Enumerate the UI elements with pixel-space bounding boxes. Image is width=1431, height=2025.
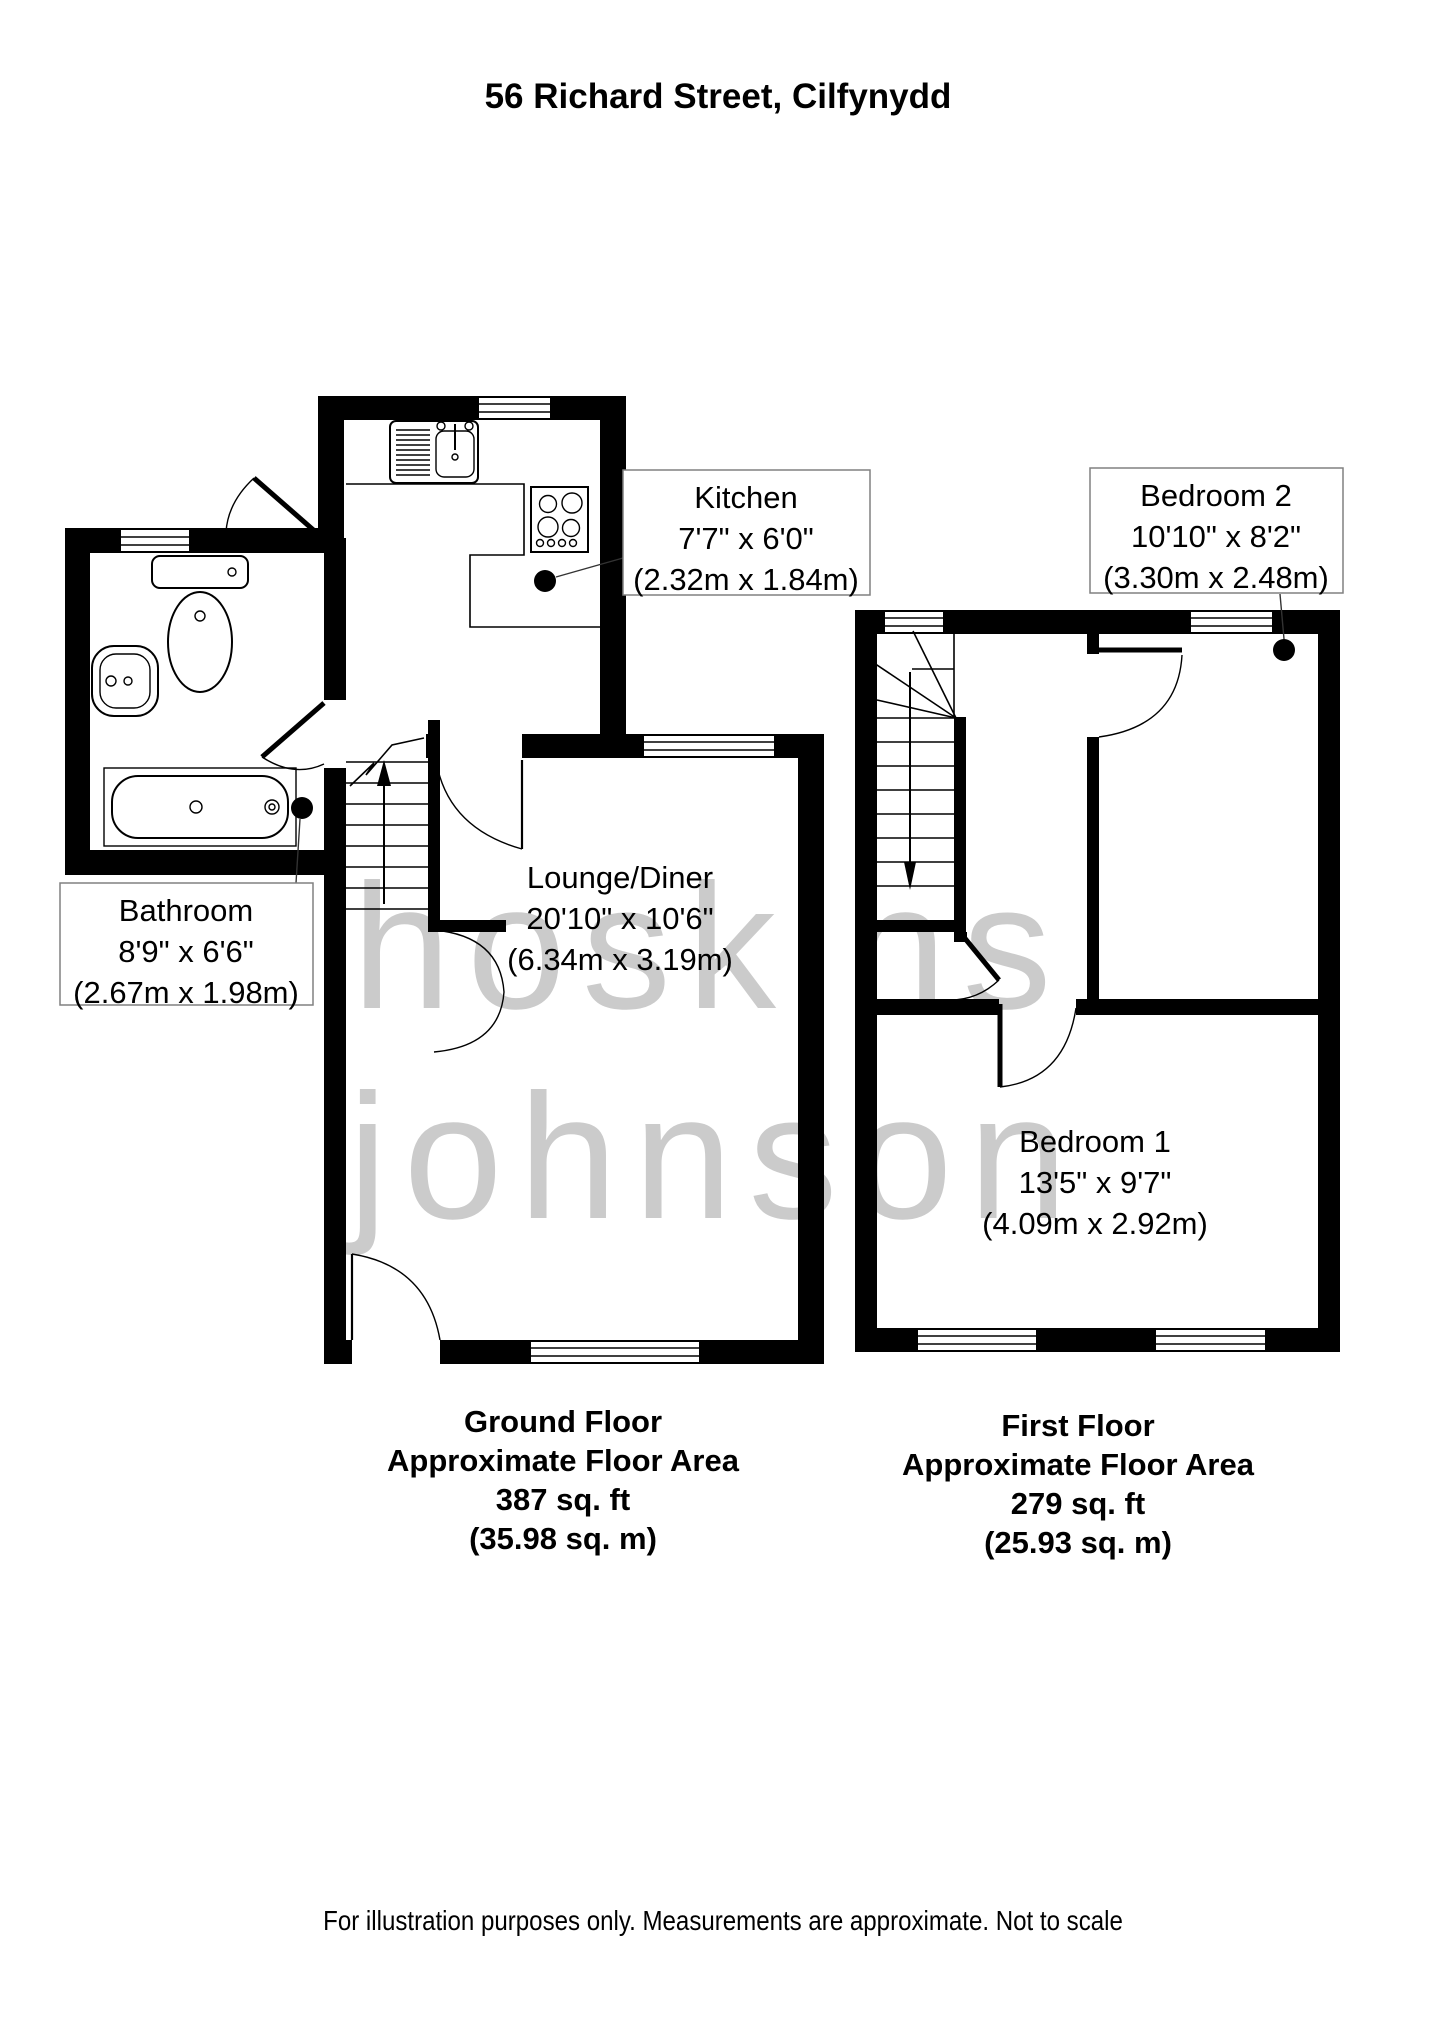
- lounge-name: Lounge/Diner: [527, 860, 713, 895]
- page-title: 56 Richard Street, Cilfynydd: [485, 77, 952, 116]
- watermark-line2: johnson: [343, 1057, 1084, 1256]
- bedroom1-window-right: [1155, 1329, 1266, 1351]
- ground-caption-line4: (35.98 sq. m): [469, 1521, 657, 1556]
- basin: [92, 646, 158, 716]
- ground-caption-line3: 387 sq. ft: [496, 1482, 630, 1517]
- bathroom-label: Bathroom 8'9" x 6'6" (2.67m x 1.98m): [60, 883, 313, 1010]
- bedroom2-name: Bedroom 2: [1140, 478, 1292, 513]
- kitchen-size-imperial: 7'7" x 6'0": [678, 521, 814, 556]
- bathroom-size-metric: (2.67m x 1.98m): [73, 975, 299, 1010]
- first-caption-line2: Approximate Floor Area: [902, 1447, 1255, 1482]
- footer-disclaimer: For illustration purposes only. Measurem…: [323, 1904, 1123, 1936]
- bathtub: [104, 768, 296, 846]
- bathroom-size-imperial: 8'9" x 6'6": [118, 934, 254, 969]
- lounge-size-imperial: 20'10" x 10'6": [526, 901, 713, 936]
- bedroom1-name: Bedroom 1: [1019, 1124, 1171, 1159]
- kitchen-sink: [390, 421, 478, 483]
- kitchen-hob: [531, 487, 588, 552]
- bedroom1-size-metric: (4.09m x 2.92m): [982, 1206, 1208, 1241]
- first-caption-line1: First Floor: [1001, 1408, 1154, 1443]
- bedroom1-window-left: [917, 1329, 1037, 1351]
- bedroom2-size-metric: (3.30m x 2.48m): [1103, 560, 1329, 595]
- bathroom-name: Bathroom: [119, 893, 253, 928]
- bedroom2-size-imperial: 10'10" x 8'2": [1131, 519, 1301, 554]
- landing-window: [884, 611, 944, 633]
- kitchen-label: Kitchen 7'7" x 6'0" (2.32m x 1.84m): [623, 470, 870, 597]
- bedroom2-window: [1190, 611, 1273, 633]
- kitchen-window: [478, 397, 551, 419]
- ground-caption-line2: Approximate Floor Area: [387, 1443, 740, 1478]
- first-caption-line4: (25.93 sq. m): [984, 1525, 1172, 1560]
- kitchen-name: Kitchen: [694, 480, 797, 515]
- lounge-size-metric: (6.34m x 3.19m): [507, 942, 733, 977]
- bedroom1-size-imperial: 13'5" x 9'7": [1019, 1165, 1172, 1200]
- lounge-bottom-window: [530, 1341, 700, 1363]
- bedroom2-label: Bedroom 2 10'10" x 8'2" (3.30m x 2.48m): [1090, 468, 1343, 595]
- floorplan-page: 56 Richard Street, Cilfynydd hoskins joh…: [0, 0, 1431, 2025]
- kitchen-size-metric: (2.32m x 1.84m): [633, 562, 859, 597]
- ground-caption-line1: Ground Floor: [464, 1404, 662, 1439]
- lounge-label: Lounge/Diner 20'10" x 10'6" (6.34m x 3.1…: [507, 860, 733, 977]
- first-caption-line3: 279 sq. ft: [1011, 1486, 1145, 1521]
- lounge-top-window: [643, 735, 775, 757]
- bathroom-window: [120, 529, 190, 552]
- floorplan-image: 56 Richard Street, Cilfynydd hoskins joh…: [0, 0, 1431, 2025]
